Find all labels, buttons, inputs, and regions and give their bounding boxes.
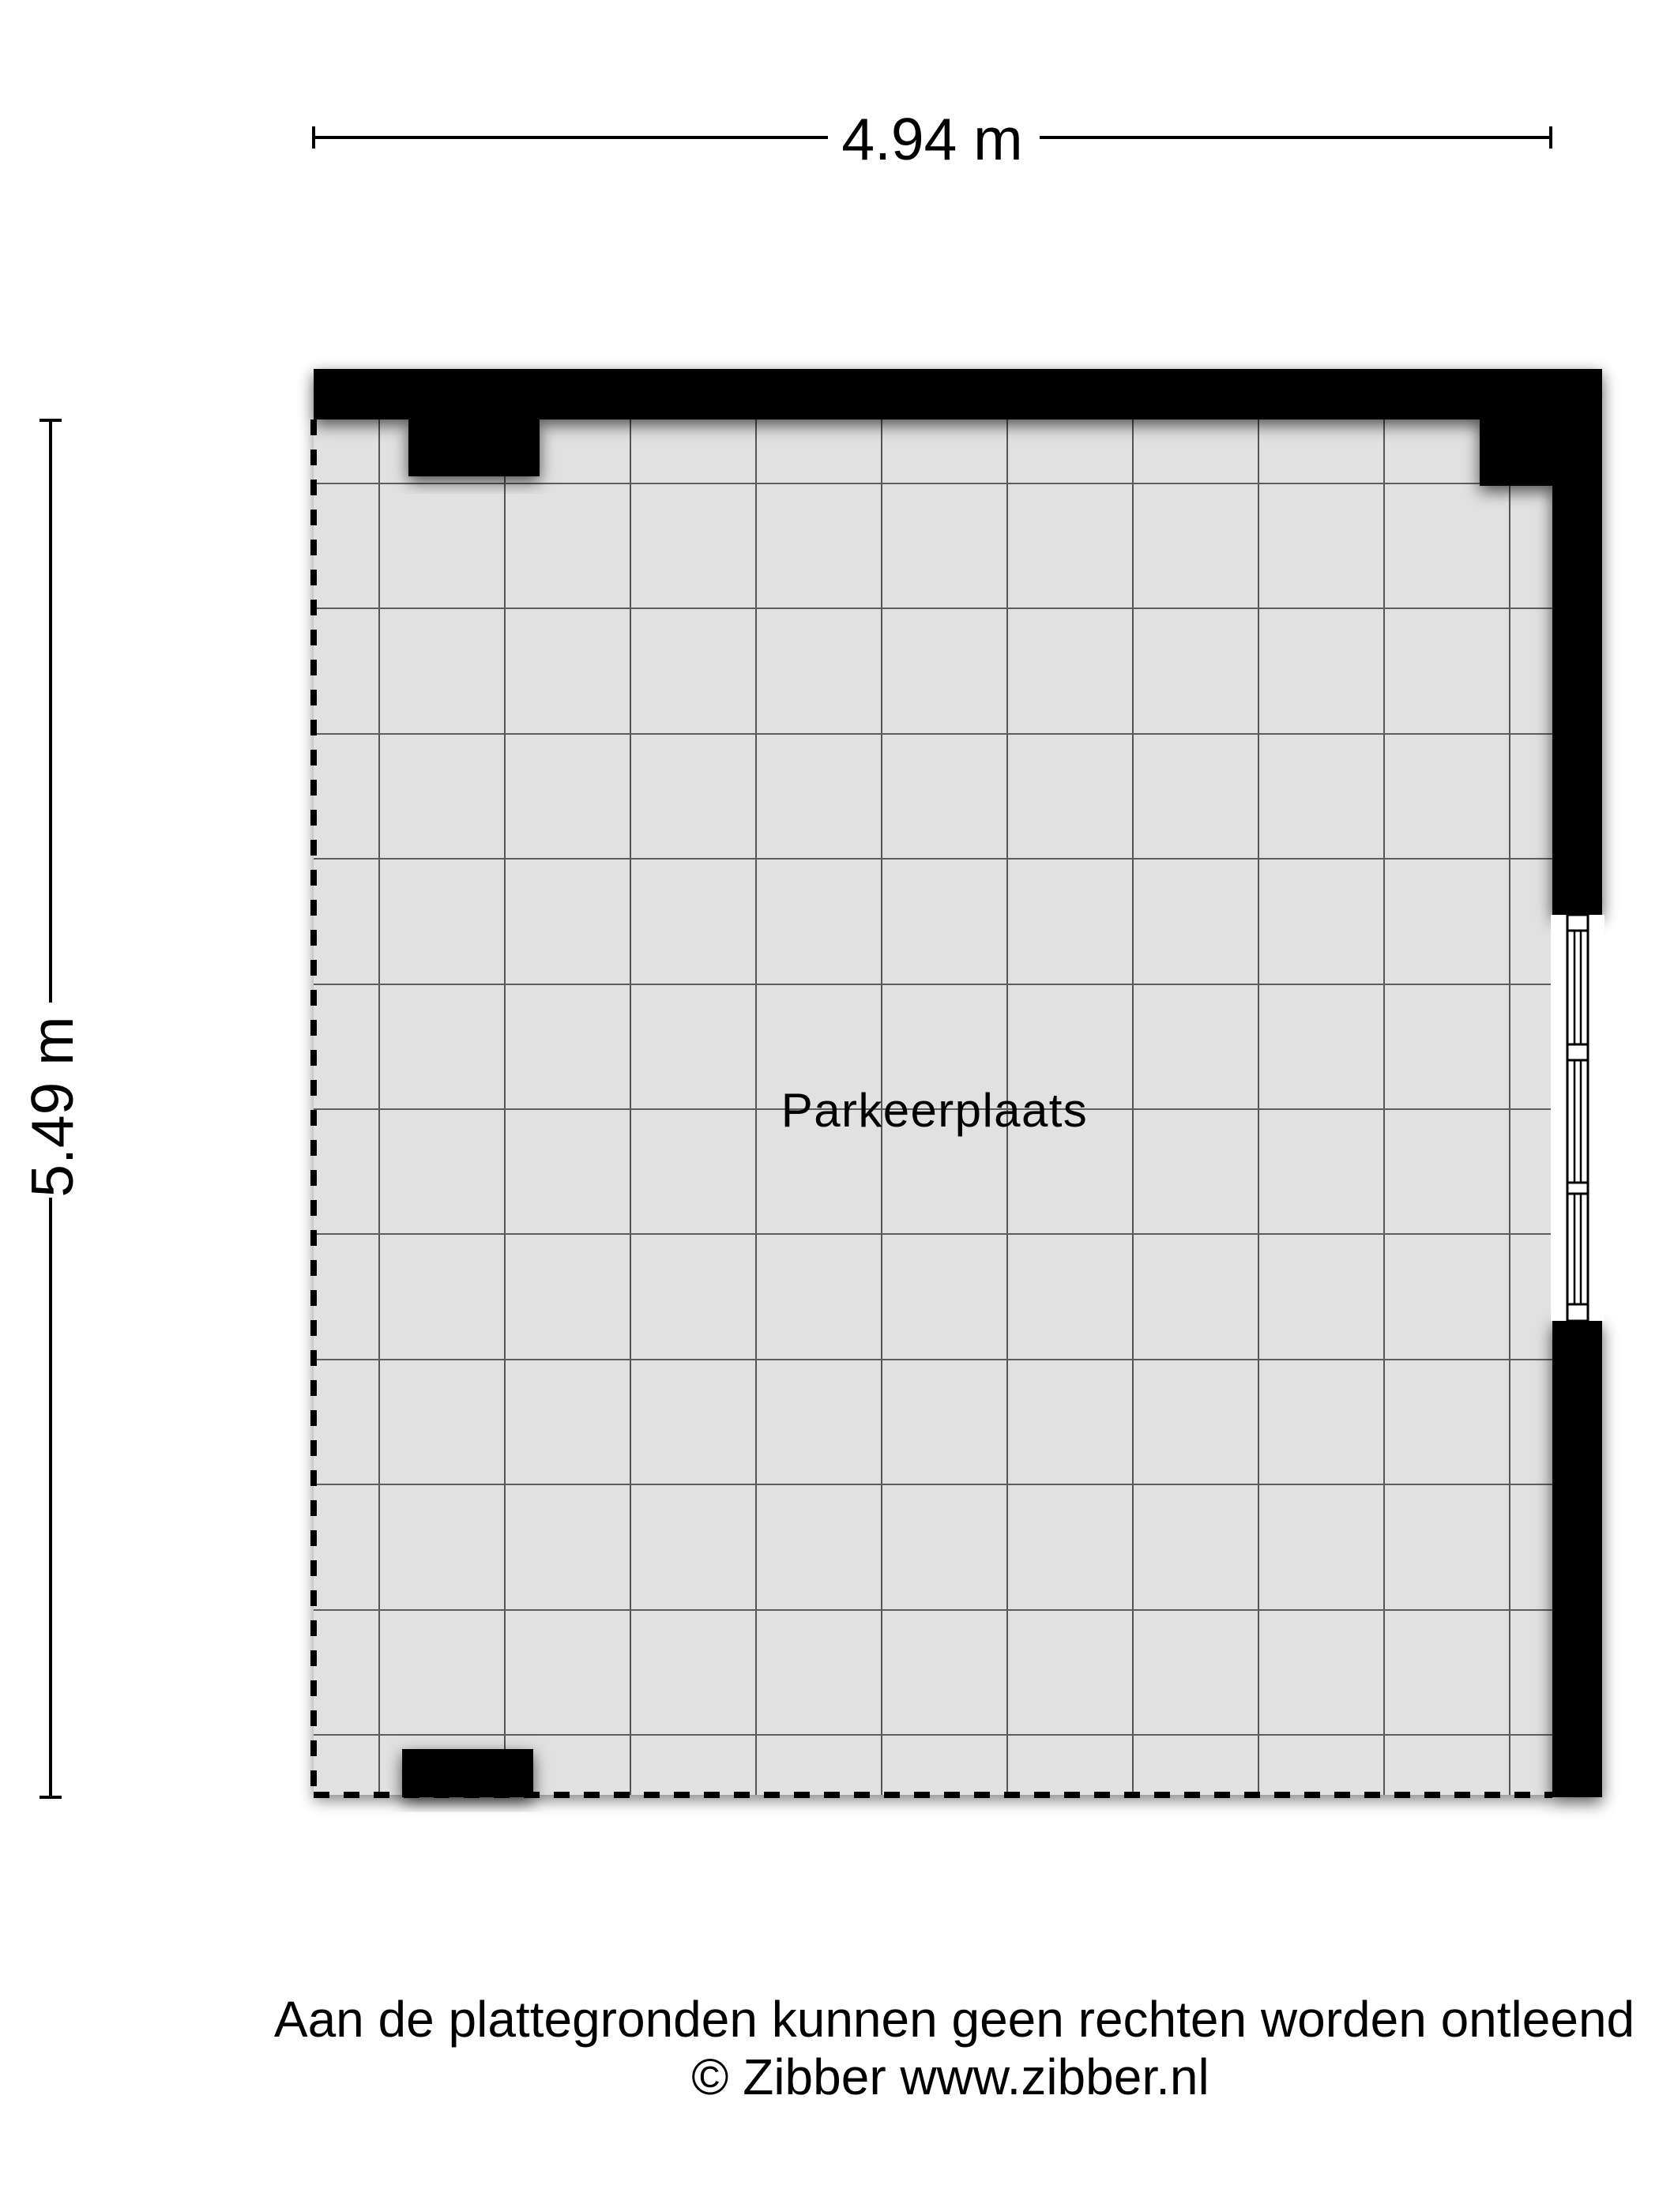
- svg-text:5.49 m: 5.49 m: [19, 1016, 85, 1197]
- svg-text:© Zibber www.zibber.nl: © Zibber www.zibber.nl: [691, 2048, 1209, 2105]
- svg-text:Parkeerplaats: Parkeerplaats: [781, 1084, 1088, 1137]
- svg-text:Aan de plattegronden kunnen ge: Aan de plattegronden kunnen geen rechten…: [274, 1991, 1635, 2048]
- svg-text:4.94 m: 4.94 m: [841, 106, 1022, 172]
